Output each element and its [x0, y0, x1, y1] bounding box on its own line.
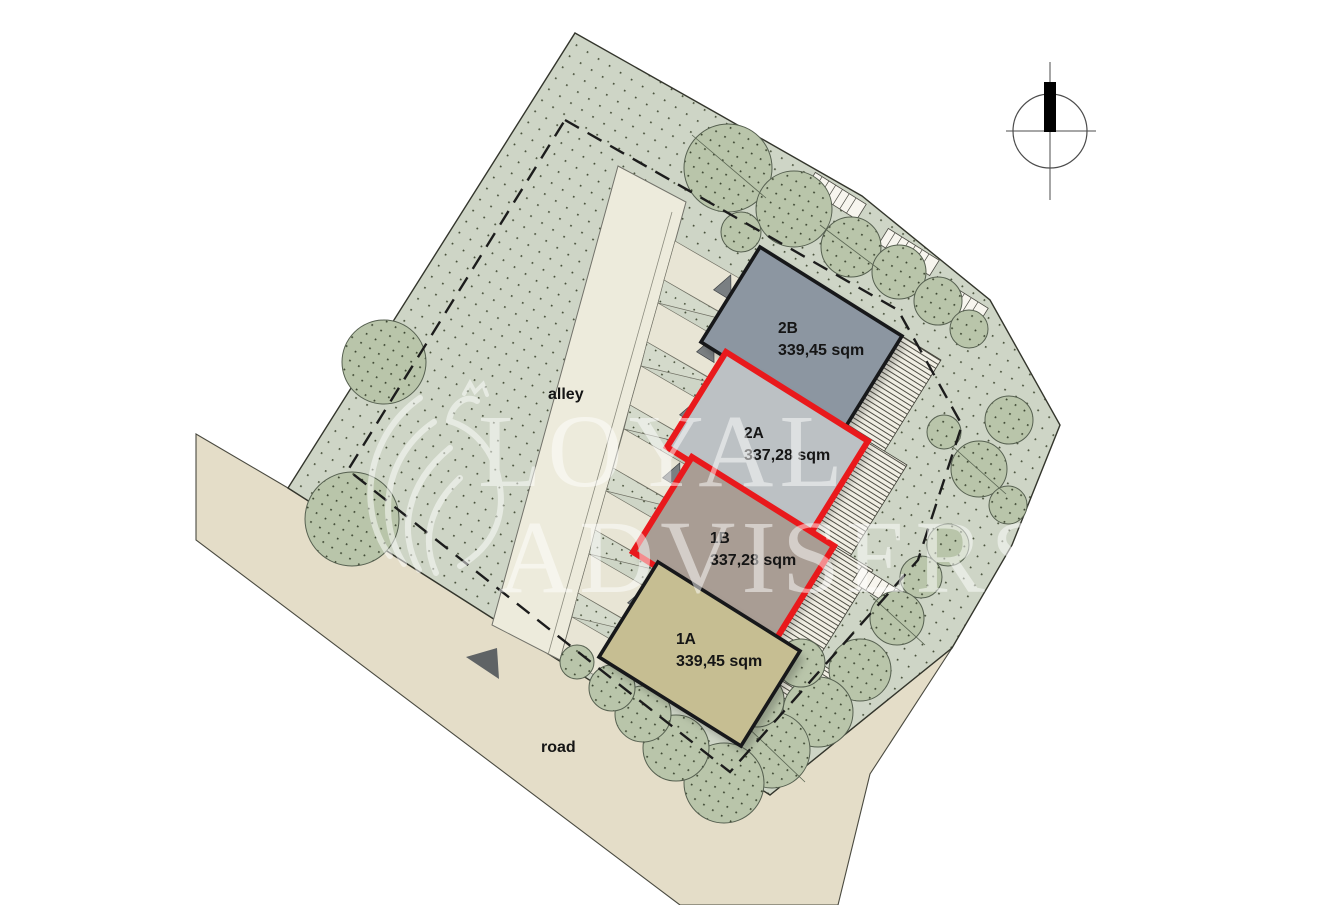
tree — [342, 320, 426, 404]
tree — [950, 310, 988, 348]
tree — [985, 396, 1033, 444]
watermark-line2: ADVISERS — [498, 500, 1055, 615]
tree — [756, 171, 832, 247]
watermark-line1: LOYAL — [478, 394, 849, 509]
site-plan: 2B339,45 sqm 2A337,28 sqm 1B337,28 sqm 1… — [0, 0, 1328, 905]
north-indicator — [1006, 62, 1096, 200]
tree — [560, 645, 594, 679]
tree — [721, 212, 761, 252]
north-arrow-bar — [1044, 82, 1056, 132]
site-plan-page: 2B339,45 sqm 2A337,28 sqm 1B337,28 sqm 1… — [0, 0, 1328, 905]
road-label: road — [541, 739, 576, 756]
